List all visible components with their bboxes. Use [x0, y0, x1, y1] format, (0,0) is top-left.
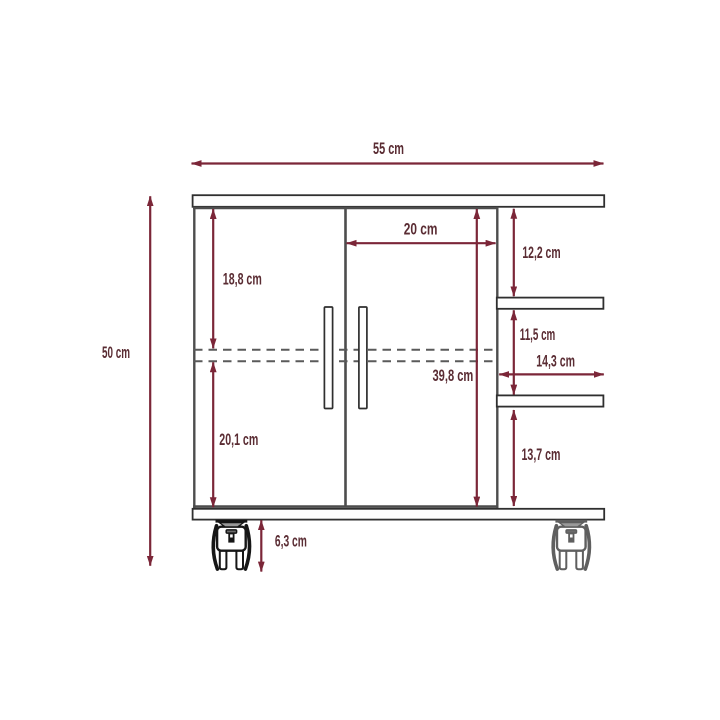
- svg-text:39,8 cm: 39,8 cm: [433, 366, 474, 385]
- svg-text:55 cm: 55 cm: [373, 139, 404, 158]
- svg-text:20,1 cm: 20,1 cm: [219, 430, 258, 449]
- svg-text:12,2 cm: 12,2 cm: [522, 243, 560, 262]
- svg-text:18,8 cm: 18,8 cm: [223, 269, 262, 288]
- svg-text:6,3 cm: 6,3 cm: [275, 531, 307, 550]
- svg-text:50 cm: 50 cm: [102, 343, 130, 362]
- svg-text:14,3 cm: 14,3 cm: [536, 351, 575, 370]
- svg-text:11,5 cm: 11,5 cm: [520, 325, 556, 344]
- svg-text:13,7 cm: 13,7 cm: [522, 445, 561, 464]
- svg-text:20 cm: 20 cm: [404, 220, 438, 239]
